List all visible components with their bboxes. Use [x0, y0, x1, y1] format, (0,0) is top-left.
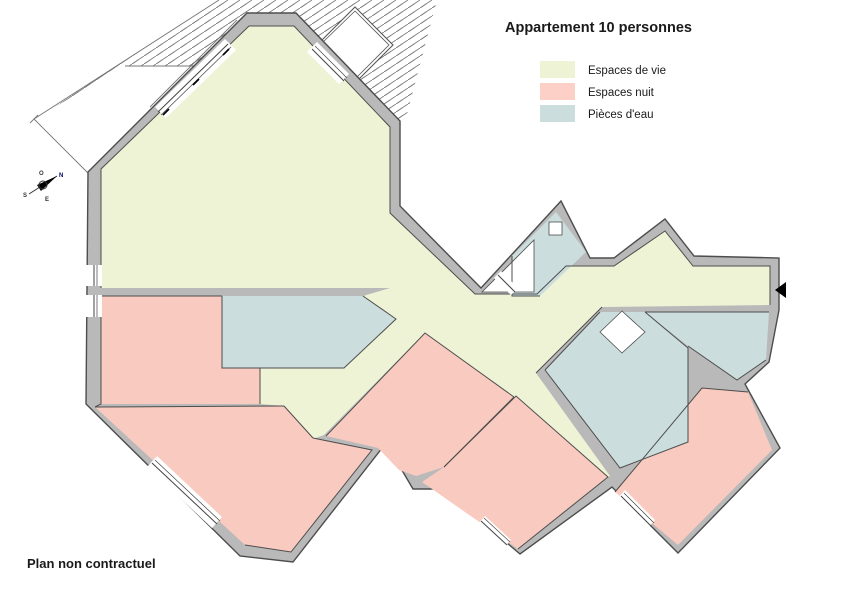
svg-text:Plan non contractuel: Plan non contractuel — [27, 556, 156, 571]
svg-text:Appartement 10 personnes: Appartement 10 personnes — [505, 20, 692, 36]
svg-text:E: E — [45, 197, 49, 203]
svg-text:Pièces d'eau: Pièces d'eau — [588, 109, 654, 121]
svg-text:O: O — [39, 171, 44, 177]
svg-text:S: S — [23, 193, 27, 199]
svg-text:Espaces nuit: Espaces nuit — [588, 87, 655, 99]
svg-text:N: N — [59, 173, 63, 179]
svg-text:Espaces de vie: Espaces de vie — [588, 65, 666, 77]
